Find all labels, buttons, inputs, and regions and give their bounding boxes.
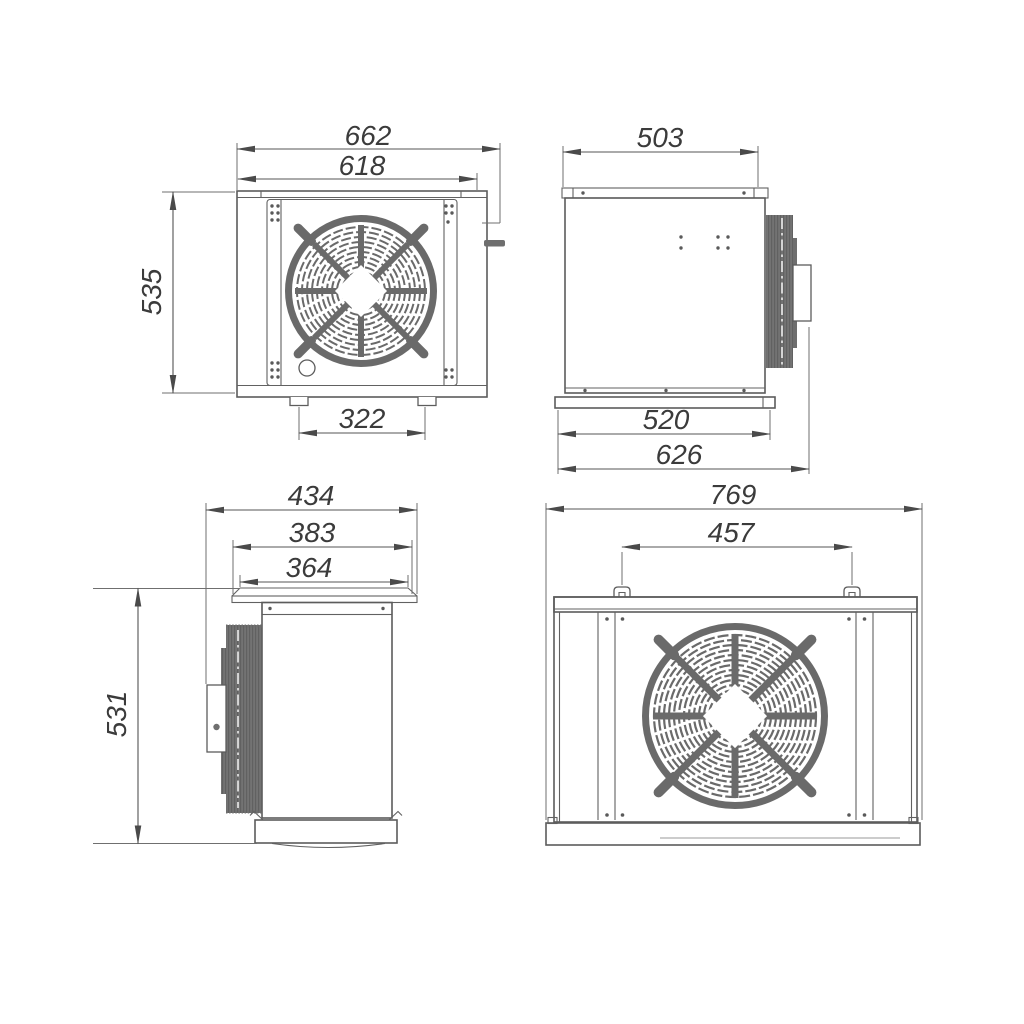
side-body-outline bbox=[565, 198, 765, 393]
drawing-canvas: 662 618 535 322 bbox=[0, 0, 1024, 1024]
left-flange-band bbox=[232, 596, 417, 603]
dim-label-left-flange-width: 383 bbox=[289, 517, 336, 548]
side-top-flange bbox=[562, 188, 768, 198]
side-right-view bbox=[555, 188, 811, 408]
dim-label-left-opening-width: 364 bbox=[286, 552, 333, 583]
left-top-strip bbox=[262, 603, 392, 615]
rear-channel-left bbox=[598, 612, 615, 820]
left-base-pan bbox=[255, 820, 397, 843]
left-bracket-stud bbox=[213, 724, 219, 730]
dim-label-front-overall-width: 662 bbox=[345, 120, 392, 151]
side-left-view bbox=[207, 588, 417, 848]
dim-left-opening-width: 364 bbox=[240, 552, 408, 587]
left-bracket bbox=[207, 685, 226, 752]
side-panel-dots bbox=[583, 235, 745, 392]
front-foot-left bbox=[290, 397, 308, 406]
left-pan-hook-right bbox=[389, 812, 402, 821]
side-condenser-coil bbox=[766, 215, 793, 368]
dim-label-side-top-width: 503 bbox=[637, 122, 684, 153]
dim-label-rear-mount-spacing: 457 bbox=[708, 517, 756, 548]
dim-label-side-base-width: 520 bbox=[643, 404, 690, 435]
left-condenser-coil bbox=[226, 625, 262, 813]
front-view bbox=[237, 191, 505, 406]
dim-front-height: 535 bbox=[136, 192, 235, 393]
left-pan-bowl bbox=[272, 844, 385, 848]
front-pipe-stub bbox=[484, 240, 505, 247]
rear-base-pan bbox=[546, 823, 920, 845]
left-flange-top bbox=[232, 588, 417, 596]
rear-top-rail bbox=[554, 597, 917, 612]
front-fan-guard bbox=[289, 219, 434, 364]
rear-channel-right bbox=[856, 612, 873, 820]
dim-label-side-overall-depth: 626 bbox=[656, 439, 703, 470]
dim-label-front-height: 535 bbox=[136, 268, 167, 315]
dim-front-body-width: 618 bbox=[238, 150, 477, 190]
four-view-technical-drawing: 662 618 535 322 bbox=[0, 0, 1024, 1024]
side-fan-motor bbox=[793, 265, 811, 321]
dim-front-feet-spacing: 322 bbox=[299, 403, 425, 440]
dim-rear-mount-spacing: 457 bbox=[622, 517, 852, 585]
dim-label-left-height: 531 bbox=[101, 691, 132, 738]
rear-view bbox=[546, 587, 920, 845]
dim-side-top-width: 503 bbox=[563, 122, 758, 187]
left-body-outline bbox=[262, 603, 392, 819]
rear-fan-guard bbox=[646, 627, 825, 806]
dim-label-left-overall-depth: 434 bbox=[288, 480, 335, 511]
dim-label-front-body-width: 618 bbox=[339, 150, 386, 181]
front-drain-hole bbox=[299, 360, 315, 376]
dim-label-rear-overall-width: 769 bbox=[710, 479, 757, 510]
front-foot-right bbox=[418, 397, 436, 406]
dim-label-front-feet-spacing: 322 bbox=[339, 403, 386, 434]
